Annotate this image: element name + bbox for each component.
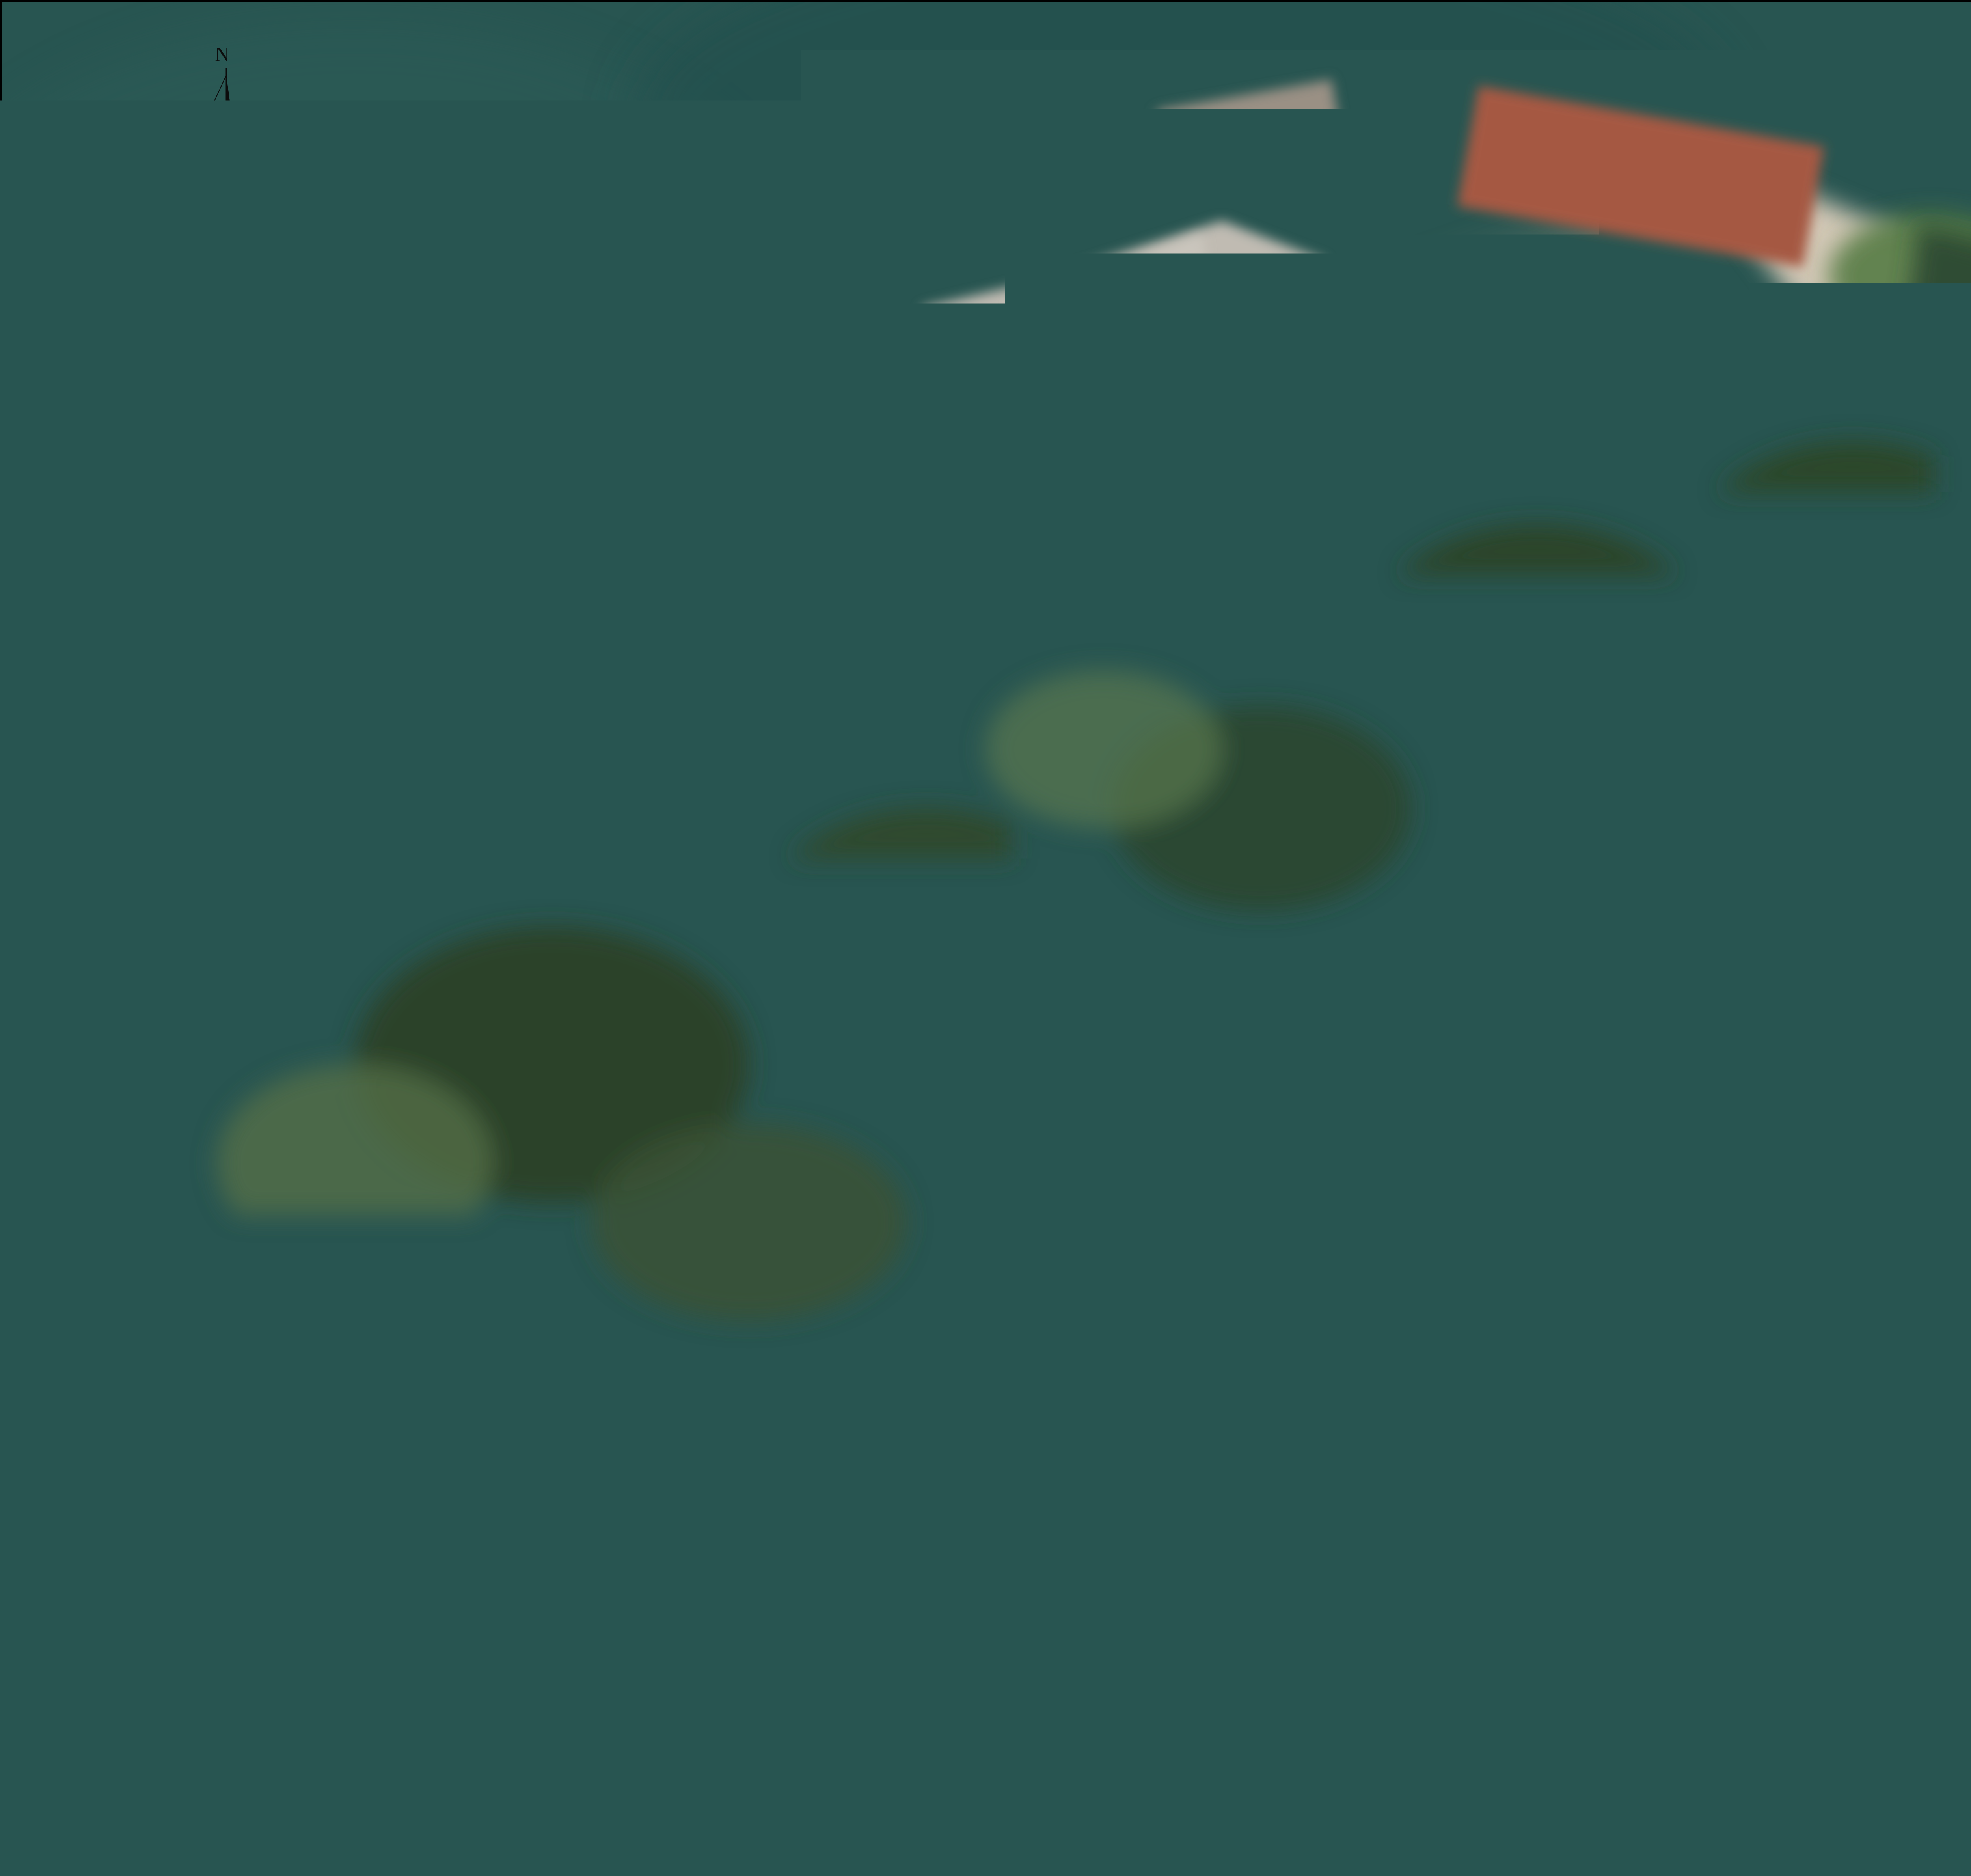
svg-text:R40: R40 [1573,1302,1612,1326]
svg-text:25: 25 [208,211,229,233]
svg-text:10: 10 [141,247,162,270]
svg-text:N: N [215,43,230,66]
svg-text:(M): (M) [317,211,349,233]
svg-text:0: 0 [97,247,107,270]
svg-text:5: 5 [118,211,129,233]
svg-text:50: 50 [321,247,341,270]
